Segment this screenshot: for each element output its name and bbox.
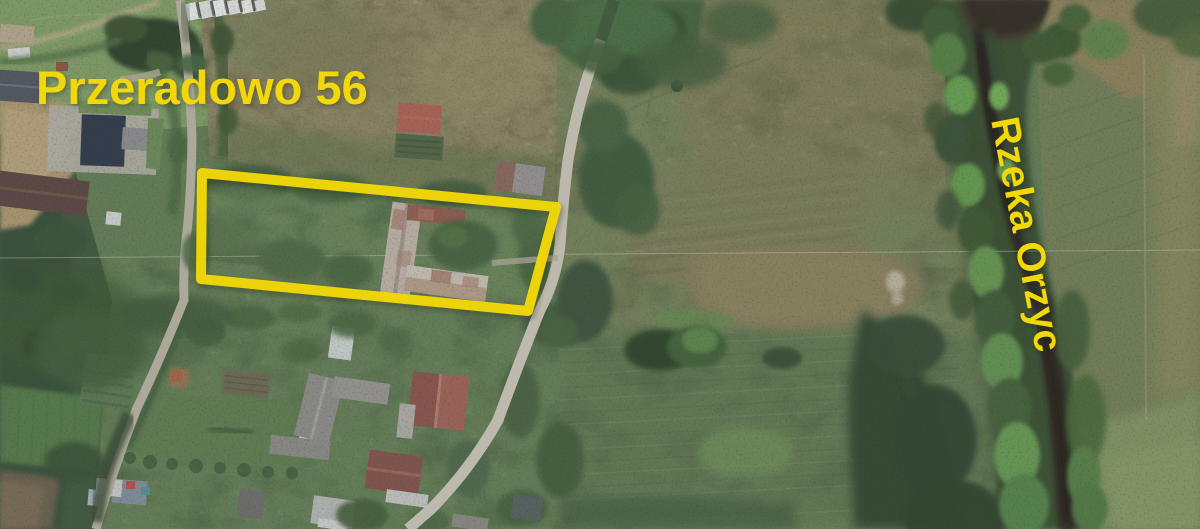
svg-text:Przeradowo 56: Przeradowo 56 (36, 61, 368, 114)
